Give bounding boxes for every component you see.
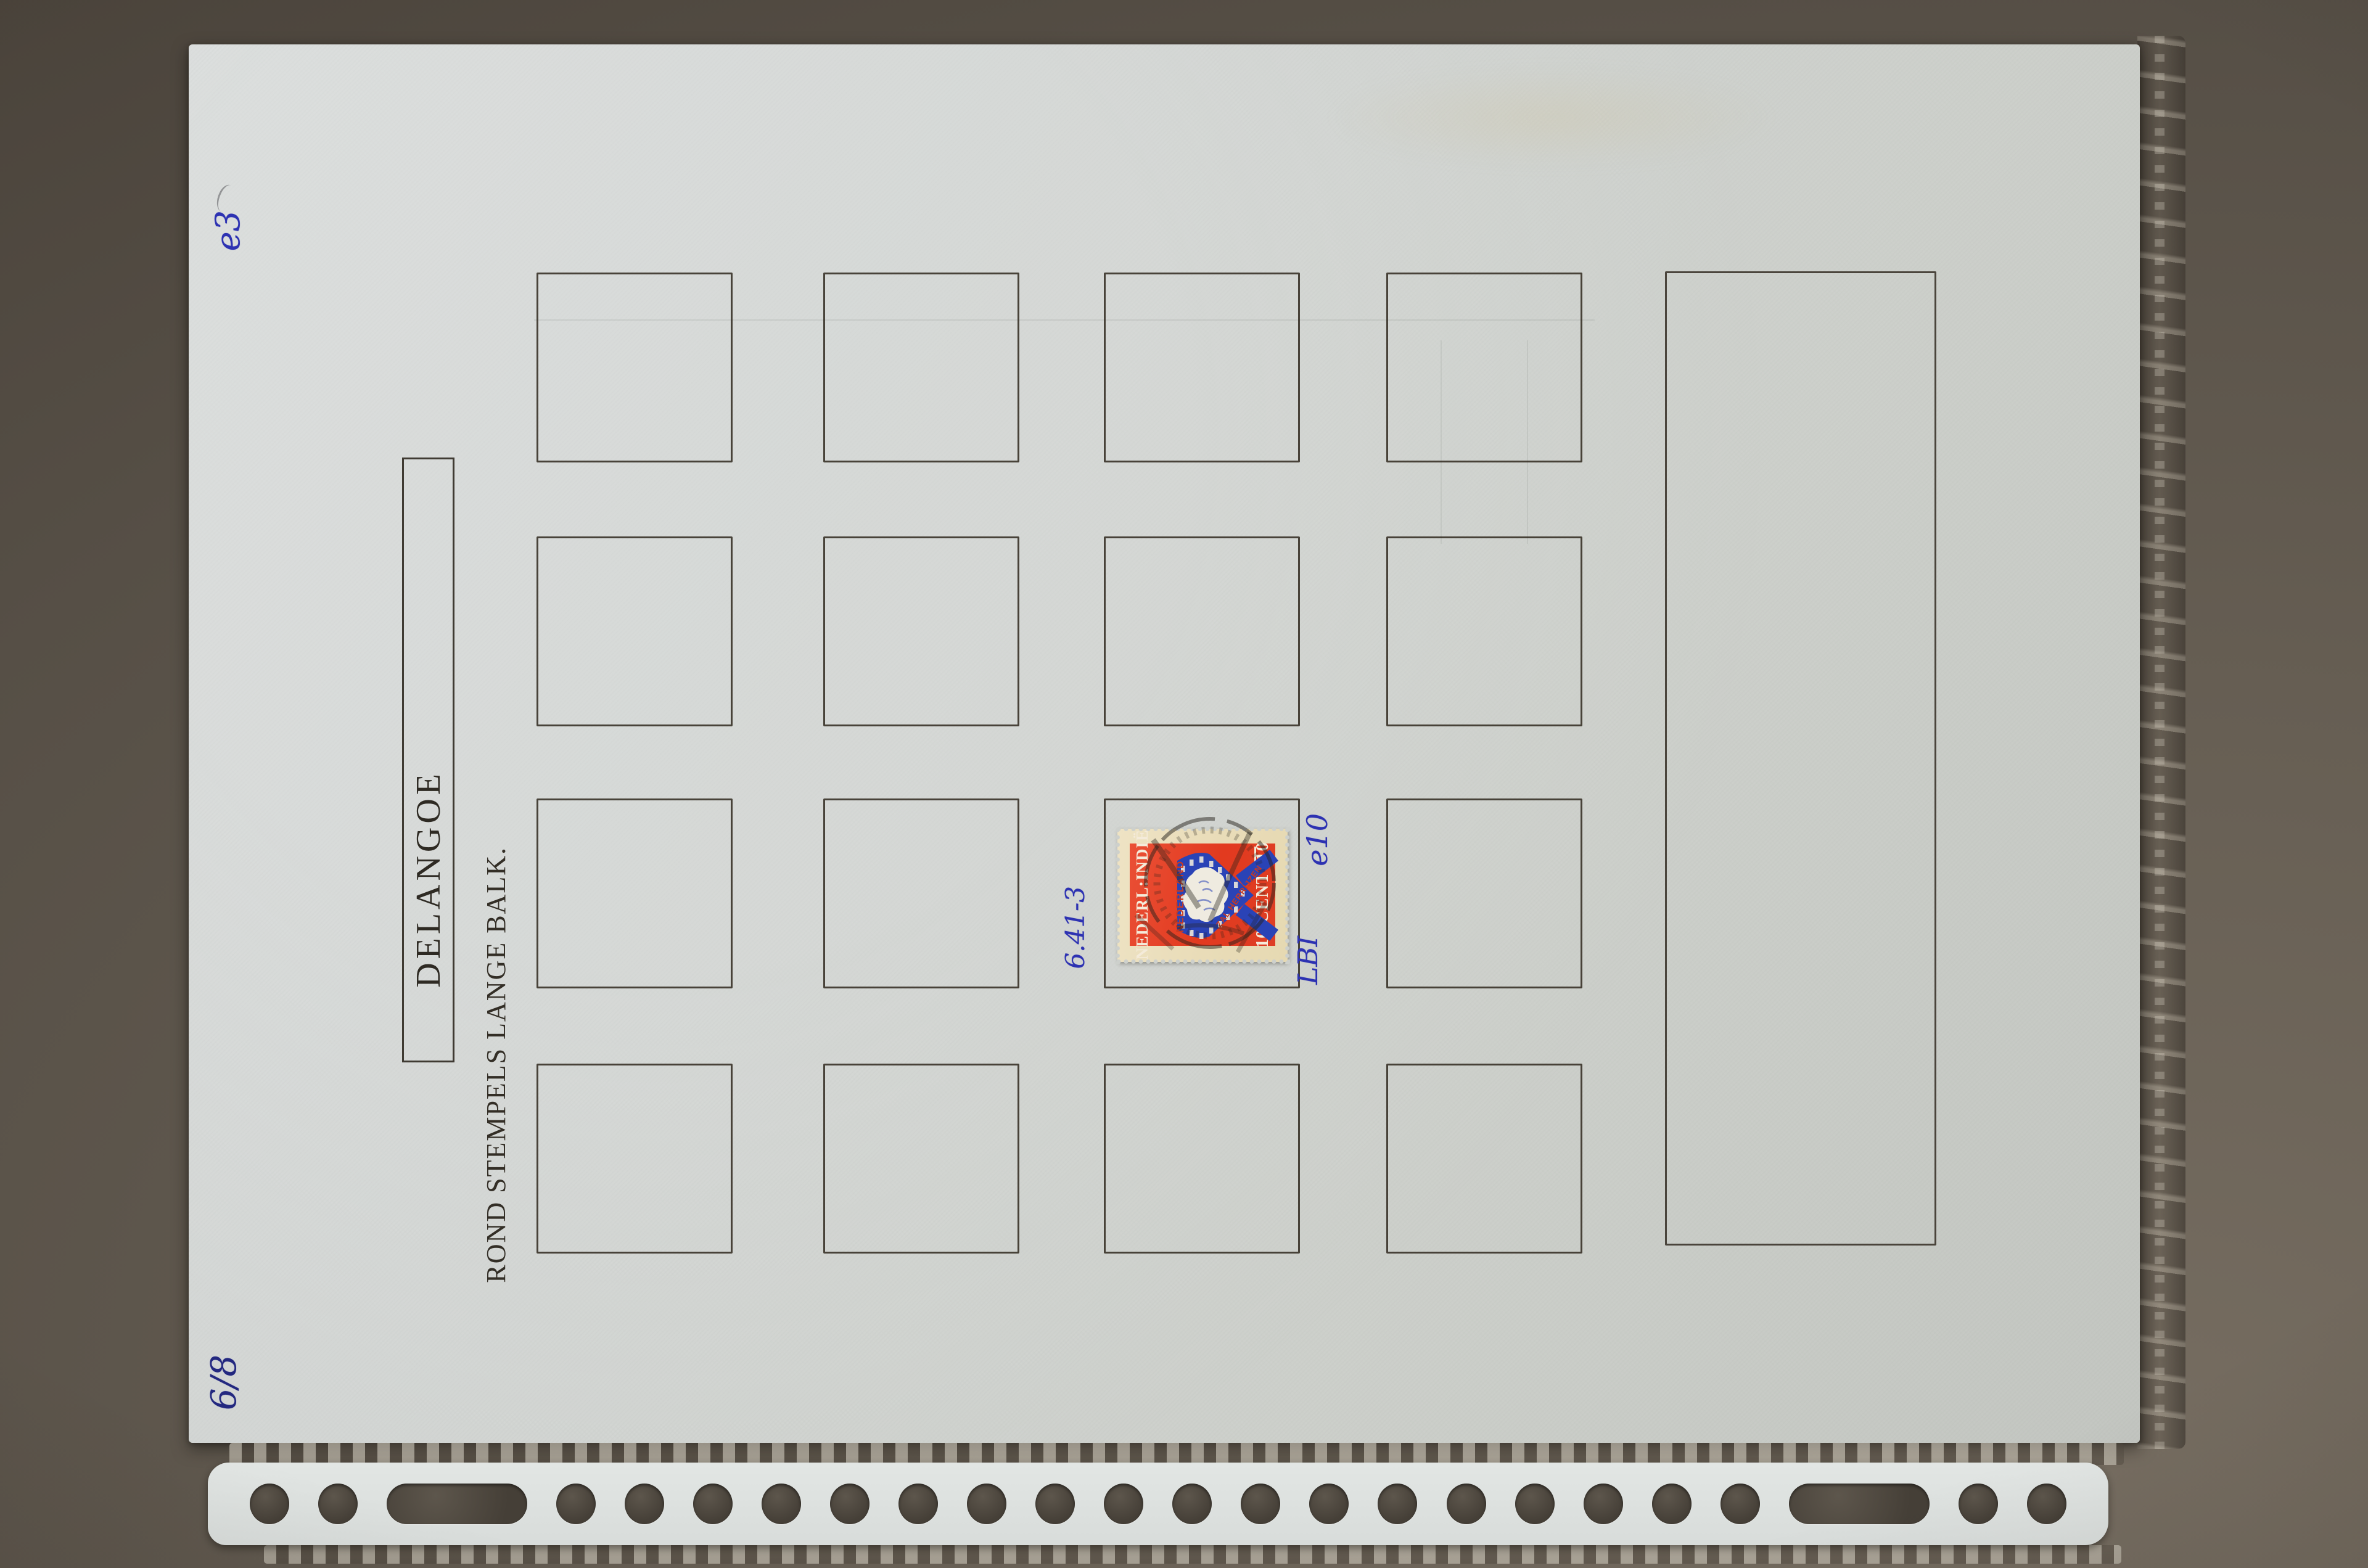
binder-hole	[1309, 1484, 1349, 1524]
binder-hole	[1172, 1484, 1212, 1524]
photo-of-album-page: { "photo": { "background_color": "#5a544…	[0, 0, 2368, 1568]
binder-hole	[693, 1484, 733, 1524]
stamp: NEDERL:INDIË 10 CENT+10	[1117, 829, 1288, 962]
annotation-right-of-stamp-upper: e10	[1288, 798, 1346, 881]
binder-hole	[1104, 1484, 1143, 1524]
binder-hole	[1241, 1484, 1280, 1524]
caption-text: ROND STEMPELS LANGE BALK.	[480, 847, 512, 1283]
binder-hole	[1515, 1484, 1555, 1524]
binder-hole	[1378, 1484, 1417, 1524]
binder-hole	[556, 1484, 596, 1524]
sleeve-weld-top	[229, 1443, 2124, 1465]
sleeve-weld-bottom	[264, 1545, 2121, 1564]
binder-hole	[1959, 1484, 1998, 1524]
stamp-mount-box	[1104, 1064, 1300, 1254]
binder-hole	[2027, 1484, 2066, 1524]
annotation-text: e3	[208, 210, 247, 251]
binder-hole	[625, 1484, 664, 1524]
binder-hole	[1447, 1484, 1486, 1524]
tall-mount-box	[1665, 271, 1936, 1246]
region-label-box: DELANGOE	[402, 458, 454, 1062]
binder-hole	[318, 1484, 358, 1524]
annotation-text: 6.41-3	[1060, 886, 1090, 969]
binder-hole	[250, 1484, 289, 1524]
binder-hole	[898, 1484, 938, 1524]
binder-hole	[1720, 1484, 1760, 1524]
annotation-right-of-stamp-lower: LBI	[1279, 908, 1338, 1012]
stamp-mount-box	[823, 798, 1019, 988]
binder-slot	[1789, 1484, 1930, 1524]
sleeve-right-seam	[2137, 36, 2185, 1449]
stamp-mount-box	[1386, 1064, 1582, 1254]
annotation-left-of-stamp: 6.41-3	[1046, 858, 1104, 997]
stamp-mount-box	[536, 273, 733, 462]
stamp-mount-box	[1386, 798, 1582, 988]
stamp-mount-box	[1386, 273, 1582, 462]
annotation-bottom-left: 6/8	[190, 1333, 258, 1432]
binder-hole	[1035, 1484, 1075, 1524]
binder-slot	[387, 1484, 527, 1524]
stamp-mount-box	[823, 536, 1019, 726]
annotation-text: e10	[1301, 813, 1334, 866]
sleeve-weld-stitches	[2155, 36, 2164, 1449]
postmark	[1117, 829, 1288, 962]
stamp-mount-box	[536, 1064, 733, 1254]
annotation-text: 6/8	[204, 1355, 244, 1410]
binder-hole	[830, 1484, 869, 1524]
region-label: DELANGOE	[409, 770, 448, 988]
stamp-mount-box	[823, 273, 1019, 462]
binder-hole	[1584, 1484, 1623, 1524]
binder-hole	[762, 1484, 801, 1524]
binder-strip	[208, 1463, 2108, 1545]
stamp-mount-box	[536, 536, 733, 726]
stamp-mount-box	[1386, 536, 1582, 726]
album-page: DELANGOE ROND STEMPELS LANGE BALK. NEDER…	[189, 44, 2140, 1443]
annotation-text: LBI	[1293, 936, 1324, 985]
binder-hole	[1652, 1484, 1692, 1524]
caption: ROND STEMPELS LANGE BALK.	[465, 868, 527, 1262]
stamp-mount-box	[1104, 273, 1300, 462]
stamp-mount-box	[823, 1064, 1019, 1254]
binder-hole	[967, 1484, 1006, 1524]
stamp-mount-box	[536, 798, 733, 988]
stamp-mount-box	[1104, 536, 1300, 726]
postmark-marks	[1136, 819, 1274, 952]
